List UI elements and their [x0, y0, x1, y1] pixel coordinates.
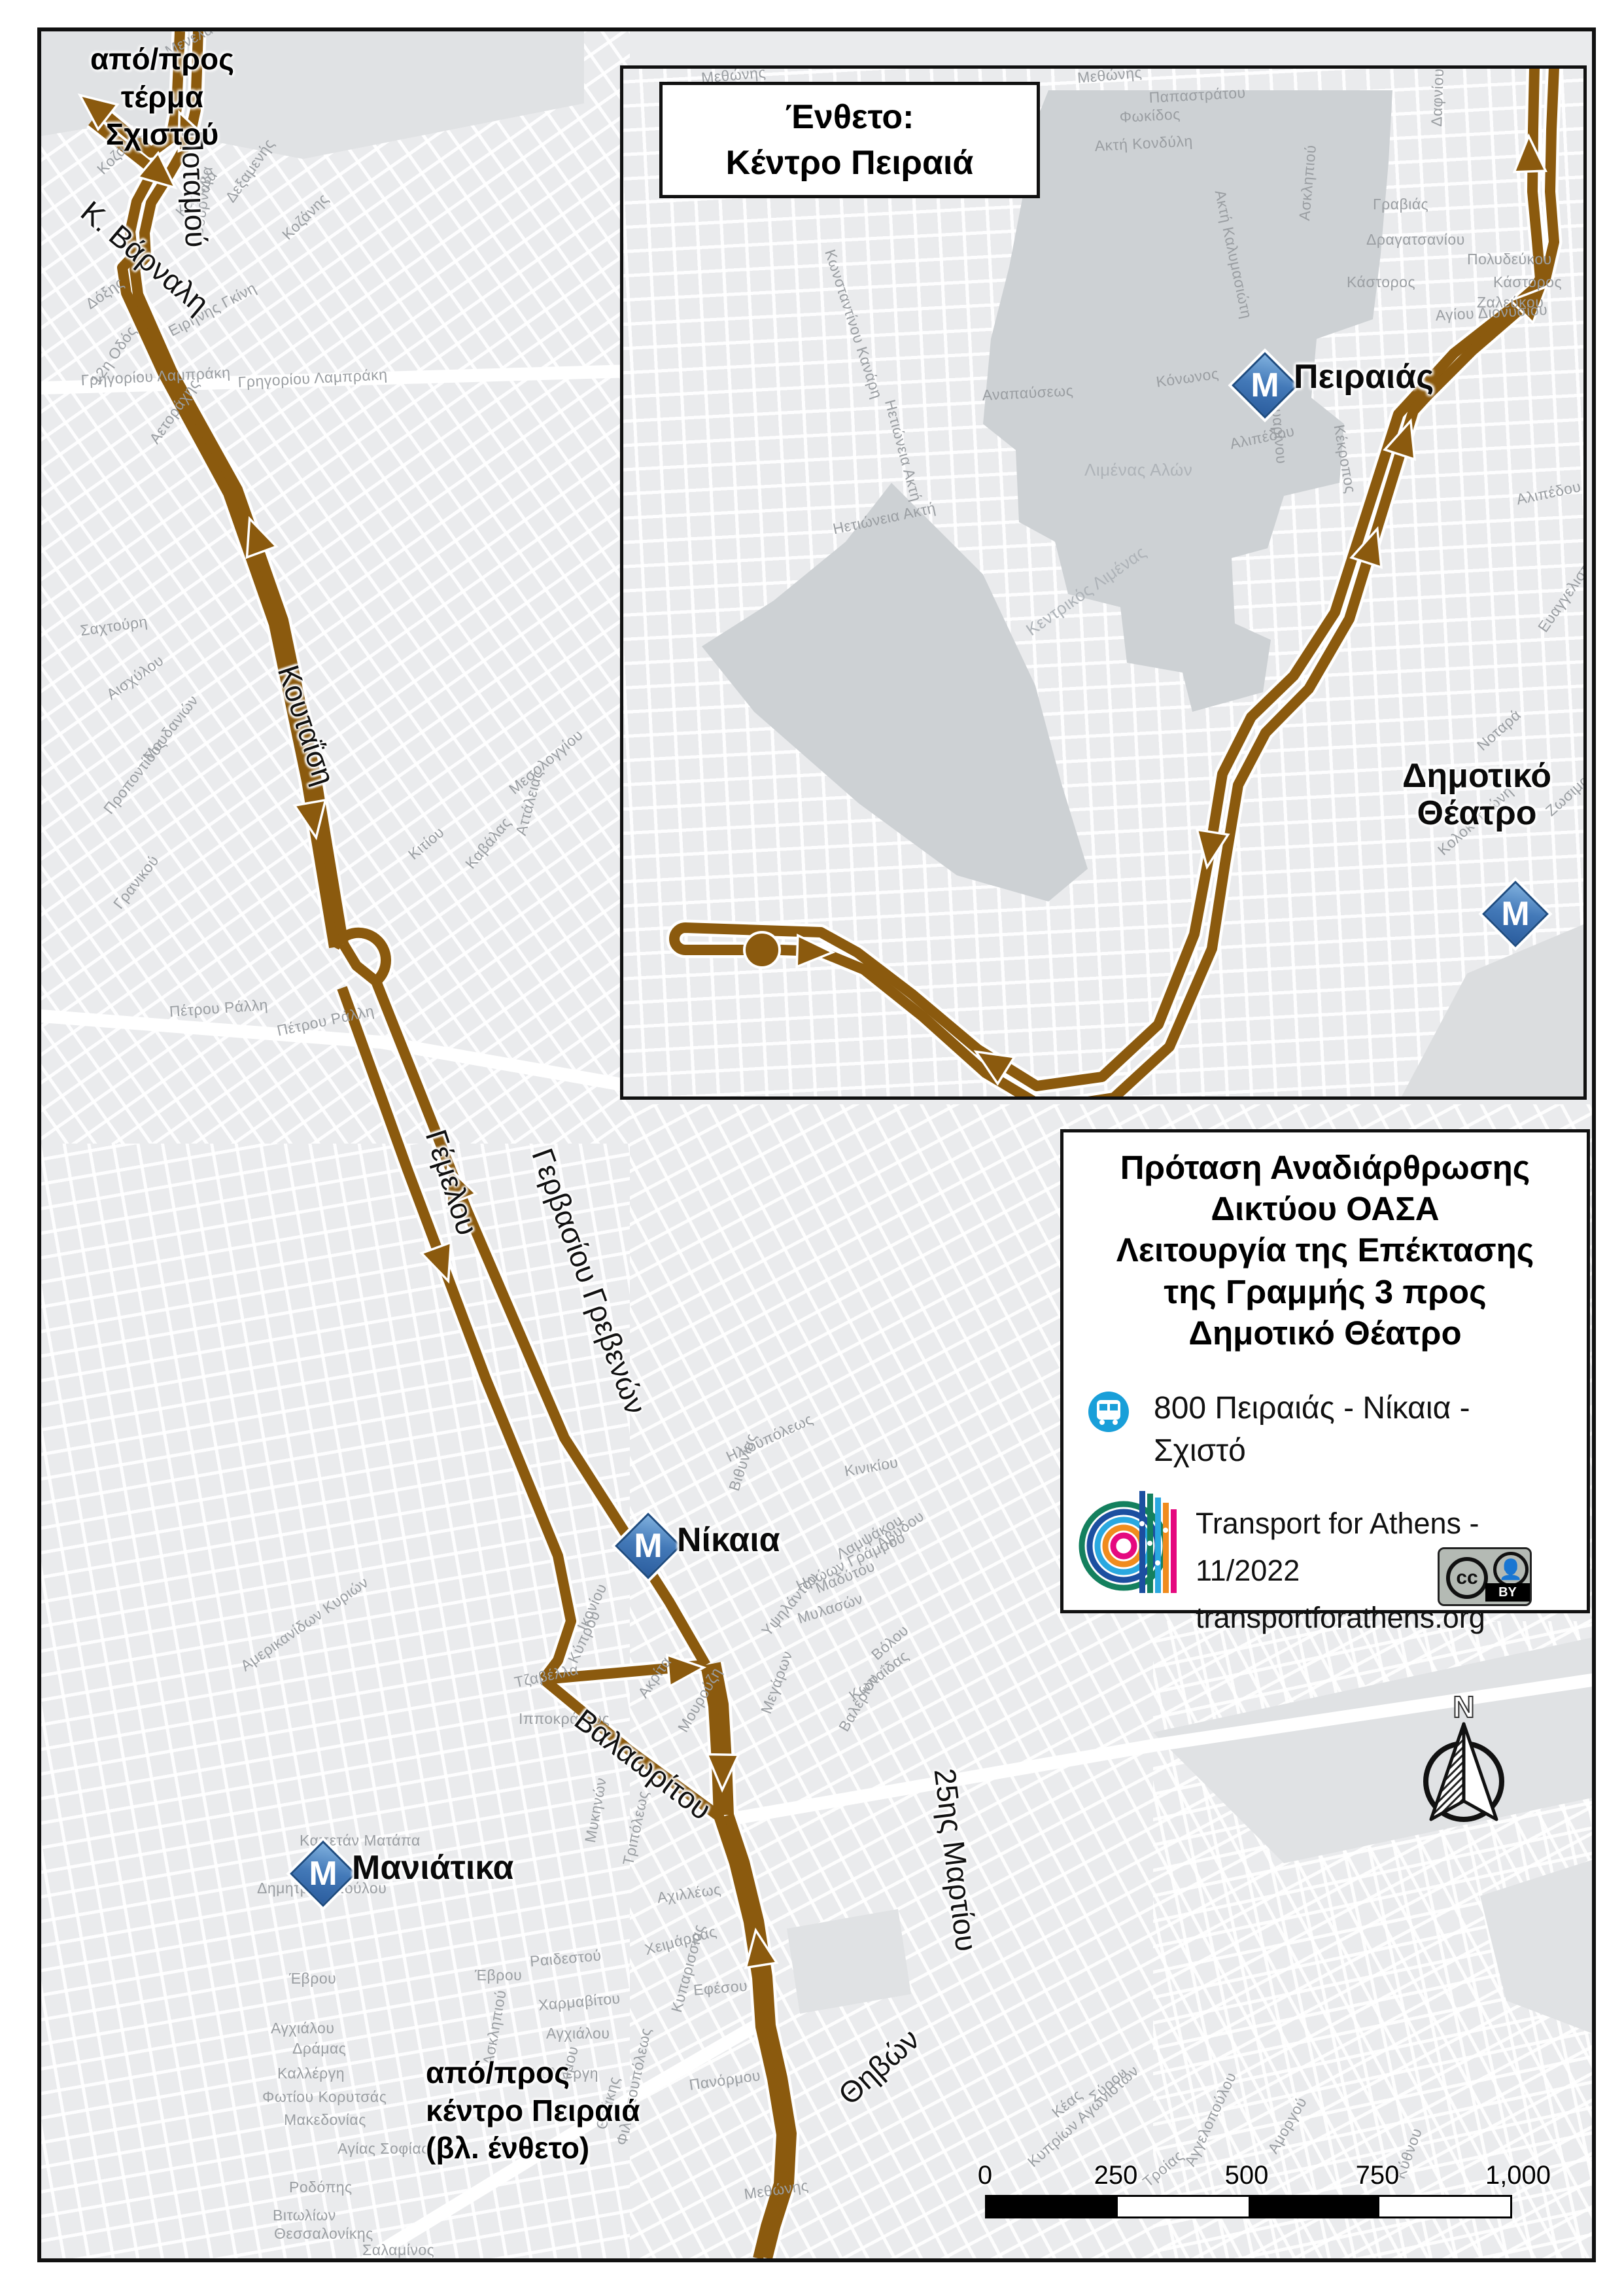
- poster-page: ΜενελάουΚοζάνηςΚαραβάΔεξαμενήςΚοζάνηςΒου…: [0, 0, 1624, 2295]
- map-zone: [1402, 924, 1583, 1096]
- cc-by-license-badge: cc 👤 BY: [1438, 1547, 1532, 1606]
- annotation-kentro-piraia: από/προς κέντρο Πειραιά (βλ. ένθετο): [426, 2054, 640, 2167]
- legend-route-label: 800 Πειραιάς - Νίκαια - Σχιστό: [1154, 1388, 1566, 1473]
- legend-credits: Transport for Athens - 11/2022 transport…: [1077, 1491, 1580, 1602]
- bus-icon: [1088, 1392, 1129, 1432]
- scale-bar-segments: [985, 2195, 1512, 2218]
- scale-tick: 750: [1356, 2161, 1400, 2190]
- metro-station-label: Νίκαια: [677, 1522, 780, 1559]
- metro-m-letter: M: [1494, 892, 1537, 936]
- annotation-schisto: από/προς τέρμα Σχιστού: [77, 41, 247, 154]
- scale-tick: 500: [1225, 2161, 1269, 2190]
- scale-tick: 250: [1094, 2161, 1138, 2190]
- avenue-road: [41, 370, 656, 388]
- cc-icon: cc: [1446, 1557, 1488, 1599]
- metro-m-letter: M: [1243, 364, 1287, 407]
- transport-for-athens-logo: [1077, 1491, 1181, 1596]
- harbor-entrance-water: [702, 483, 1088, 902]
- map-zone: [1480, 1860, 1592, 2033]
- north-arrow: N: [1408, 1693, 1519, 1844]
- legend-box: Πρόταση Αναδιάρθρωσης Δικτύου ΟΑΣΑ Λειτο…: [1060, 1129, 1590, 1613]
- metro-station-label: Δημοτικό Θέατρο: [1402, 758, 1551, 832]
- cc-by-label: BY: [1485, 1583, 1530, 1602]
- metro-m-letter: M: [302, 1852, 345, 1895]
- metro-station-label: Πειραιάς: [1294, 359, 1434, 396]
- map-zone: [1153, 1638, 1592, 1863]
- legend-title: Πρόταση Αναδιάρθρωσης Δικτύου ΟΑΣΑ Λειτο…: [1070, 1147, 1580, 1354]
- inset-route-layer: [623, 69, 1583, 1096]
- avenue-road: [41, 1016, 630, 1086]
- inset-map-piraeus-center: ΜεθώνηςΜεθώνηςΣωκράτουςΠαπαστράτουΦωκίδο…: [620, 65, 1587, 1100]
- legend-route-entry: 800 Πειραιάς - Νίκαια - Σχιστό: [1088, 1388, 1566, 1473]
- metro-m-letter: M: [627, 1524, 670, 1568]
- attribution-person-icon: 👤: [1493, 1552, 1529, 1587]
- terminus-stop-circle: [744, 932, 780, 968]
- inset-title-box: Ένθετο: Κέντρο Πειραιά: [659, 82, 1040, 198]
- metro-station-label: Μανιάτικα: [352, 1849, 514, 1887]
- scale-tick: 0: [978, 2161, 992, 2190]
- north-letter: N: [1453, 1693, 1474, 1724]
- main-map: ΜενελάουΚοζάνηςΚαραβάΔεξαμενήςΚοζάνηςΒου…: [37, 27, 1596, 2262]
- map-zone: [787, 1909, 911, 2014]
